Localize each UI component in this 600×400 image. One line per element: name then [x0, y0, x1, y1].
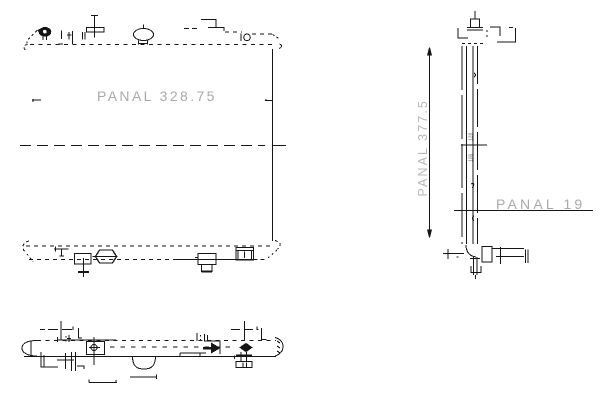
svg-text:106: 106 [469, 153, 475, 162]
svg-text:PANAL 19: PANAL 19 [496, 196, 585, 212]
svg-text:128: 128 [469, 132, 475, 141]
svg-text:PANAL 377.5: PANAL 377.5 [416, 99, 430, 196]
svg-text:PANAL 328.75: PANAL 328.75 [97, 88, 217, 104]
